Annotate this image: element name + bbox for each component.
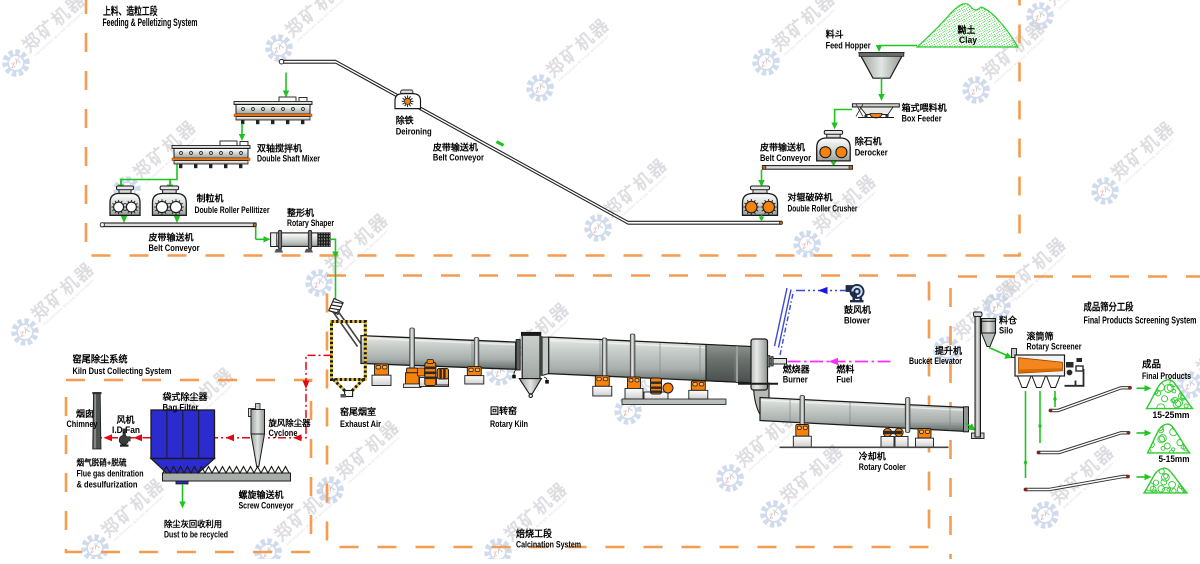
svg-text:Final Products Screening Syste: Final Products Screening System [1084,316,1197,327]
svg-text:郑矿机器: 郑矿机器 [776,440,847,507]
svg-text:Rotary Screener: Rotary Screener [1027,342,1082,353]
svg-text:焙烧工段: 焙烧工段 [516,528,552,540]
svg-text:料仓: 料仓 [999,315,1018,326]
svg-text:鼓风机: 鼓风机 [844,304,871,315]
svg-text:除铁: 除铁 [396,115,414,126]
svg-text:提升机: 提升机 [935,345,962,356]
svg-text:烟气脱硝+脱硫: 烟气脱硝+脱硫 [77,458,127,468]
svg-text:15-25mm: 15-25mm [1153,410,1190,421]
svg-text:& desulfurization: & desulfurization [77,480,138,491]
svg-text:郑矿机器: 郑矿机器 [542,14,613,81]
svg-text:双轴搅拌机: 双轴搅拌机 [257,143,302,154]
svg-text:成品: 成品 [1142,359,1161,371]
svg-text:Cyclone: Cyclone [269,428,298,439]
svg-text:Bag Filter: Bag Filter [163,403,199,414]
svg-text:烟囱: 烟囱 [76,408,94,419]
svg-text:Double Roller Pellitizer: Double Roller Pellitizer [195,205,270,216]
svg-text:Double Roller Crusher: Double Roller Crusher [788,204,858,215]
svg-text:Exhaust Air: Exhaust Air [340,419,381,430]
svg-text:Calcination System: Calcination System [516,540,581,551]
svg-text:Feeding & Pelletizing System: Feeding & Pelletizing System [103,17,198,29]
svg-text:除尘灰回收利用: 除尘灰回收利用 [164,519,222,529]
svg-text:燃烧器: 燃烧器 [783,364,811,375]
svg-text:燃料: 燃料 [836,364,854,375]
svg-text:上料、造粒工段: 上料、造粒工段 [103,5,158,18]
svg-text:Bucket Elevator: Bucket Elevator [909,356,962,367]
svg-text:Derocker: Derocker [855,148,888,159]
svg-text:ZHENGZHOU MINING MACHINERY: ZHENGZHOU MINING MACHINERY [1057,0,1111,11]
svg-text:袋式除尘器: 袋式除尘器 [162,391,209,402]
svg-text:郑矿机器: 郑矿机器 [600,154,671,221]
svg-text:Clay: Clay [959,35,978,46]
svg-text:冷却机: 冷却机 [859,451,886,462]
svg-text:Deironing: Deironing [396,127,432,138]
svg-text:Belt Conveyor: Belt Conveyor [433,153,484,164]
svg-text:整形机: 整形机 [286,207,314,218]
svg-text:滚筒筛: 滚筒筛 [1027,331,1054,342]
svg-text:Rotary Shaper: Rotary Shaper [287,218,334,229]
svg-text:成品筛分工段: 成品筛分工段 [1084,301,1134,314]
svg-text:除石机: 除石机 [855,136,882,147]
svg-text:郑矿机器: 郑矿机器 [1042,0,1113,9]
svg-text:Feed Hopper: Feed Hopper [826,41,871,52]
svg-text:Chimney: Chimney [67,419,99,430]
svg-text:箱式喂料机: 箱式喂料机 [902,102,947,113]
svg-text:皮带输送机: 皮带输送机 [148,232,194,243]
svg-text:Kiln Dust Collecting System: Kiln Dust Collecting System [73,366,172,377]
svg-text:I.D.Fan: I.D.Fan [112,425,140,436]
svg-text:对辊破碎机: 对辊破碎机 [788,192,833,203]
svg-text:Flue gas denitration: Flue gas denitration [77,469,144,480]
svg-text:皮带输送机: 皮带输送机 [759,142,805,153]
svg-text:Belt Conveyor: Belt Conveyor [149,243,200,254]
svg-text:旋风除尘器: 旋风除尘器 [268,418,311,428]
svg-text:Rotary Kiln: Rotary Kiln [490,419,528,430]
svg-text:窑尾除尘系统: 窑尾除尘系统 [73,354,128,366]
svg-text:窑尾烟室: 窑尾烟室 [340,406,376,417]
svg-text:Screw Conveyor: Screw Conveyor [239,501,294,512]
svg-text:回转窑: 回转窑 [490,405,517,416]
svg-text:Fuel: Fuel [836,375,852,386]
svg-text:Box Feeder: Box Feeder [902,114,942,125]
svg-text:Dust to be recycled: Dust to be recycled [164,530,228,541]
svg-text:Blower: Blower [844,316,870,327]
svg-text:制粒机: 制粒机 [197,193,224,204]
svg-text:风机: 风机 [117,414,135,425]
svg-text:料斗: 料斗 [826,29,844,40]
svg-text:Final Products: Final Products [1142,371,1191,382]
svg-text:郑矿机器: 郑矿机器 [1107,117,1178,184]
svg-text:Burner: Burner [783,375,808,386]
svg-text:Silo: Silo [999,326,1013,337]
svg-text:郑矿机器: 郑矿机器 [27,258,98,325]
svg-text:Belt Conveyor: Belt Conveyor [760,153,811,164]
svg-text:螺旋输送机: 螺旋输送机 [239,489,284,500]
svg-text:黝土: 黝土 [958,24,976,35]
svg-text:郑矿机器: 郑矿机器 [18,0,89,56]
svg-text:皮带输送机: 皮带输送机 [432,142,478,153]
svg-text:郑矿机器: 郑矿机器 [999,233,1070,300]
svg-text:Double Shaft Mixer: Double Shaft Mixer [257,154,320,165]
svg-text:5-15mm: 5-15mm [1159,454,1190,465]
svg-text:Rotary Cooler: Rotary Cooler [859,462,906,473]
